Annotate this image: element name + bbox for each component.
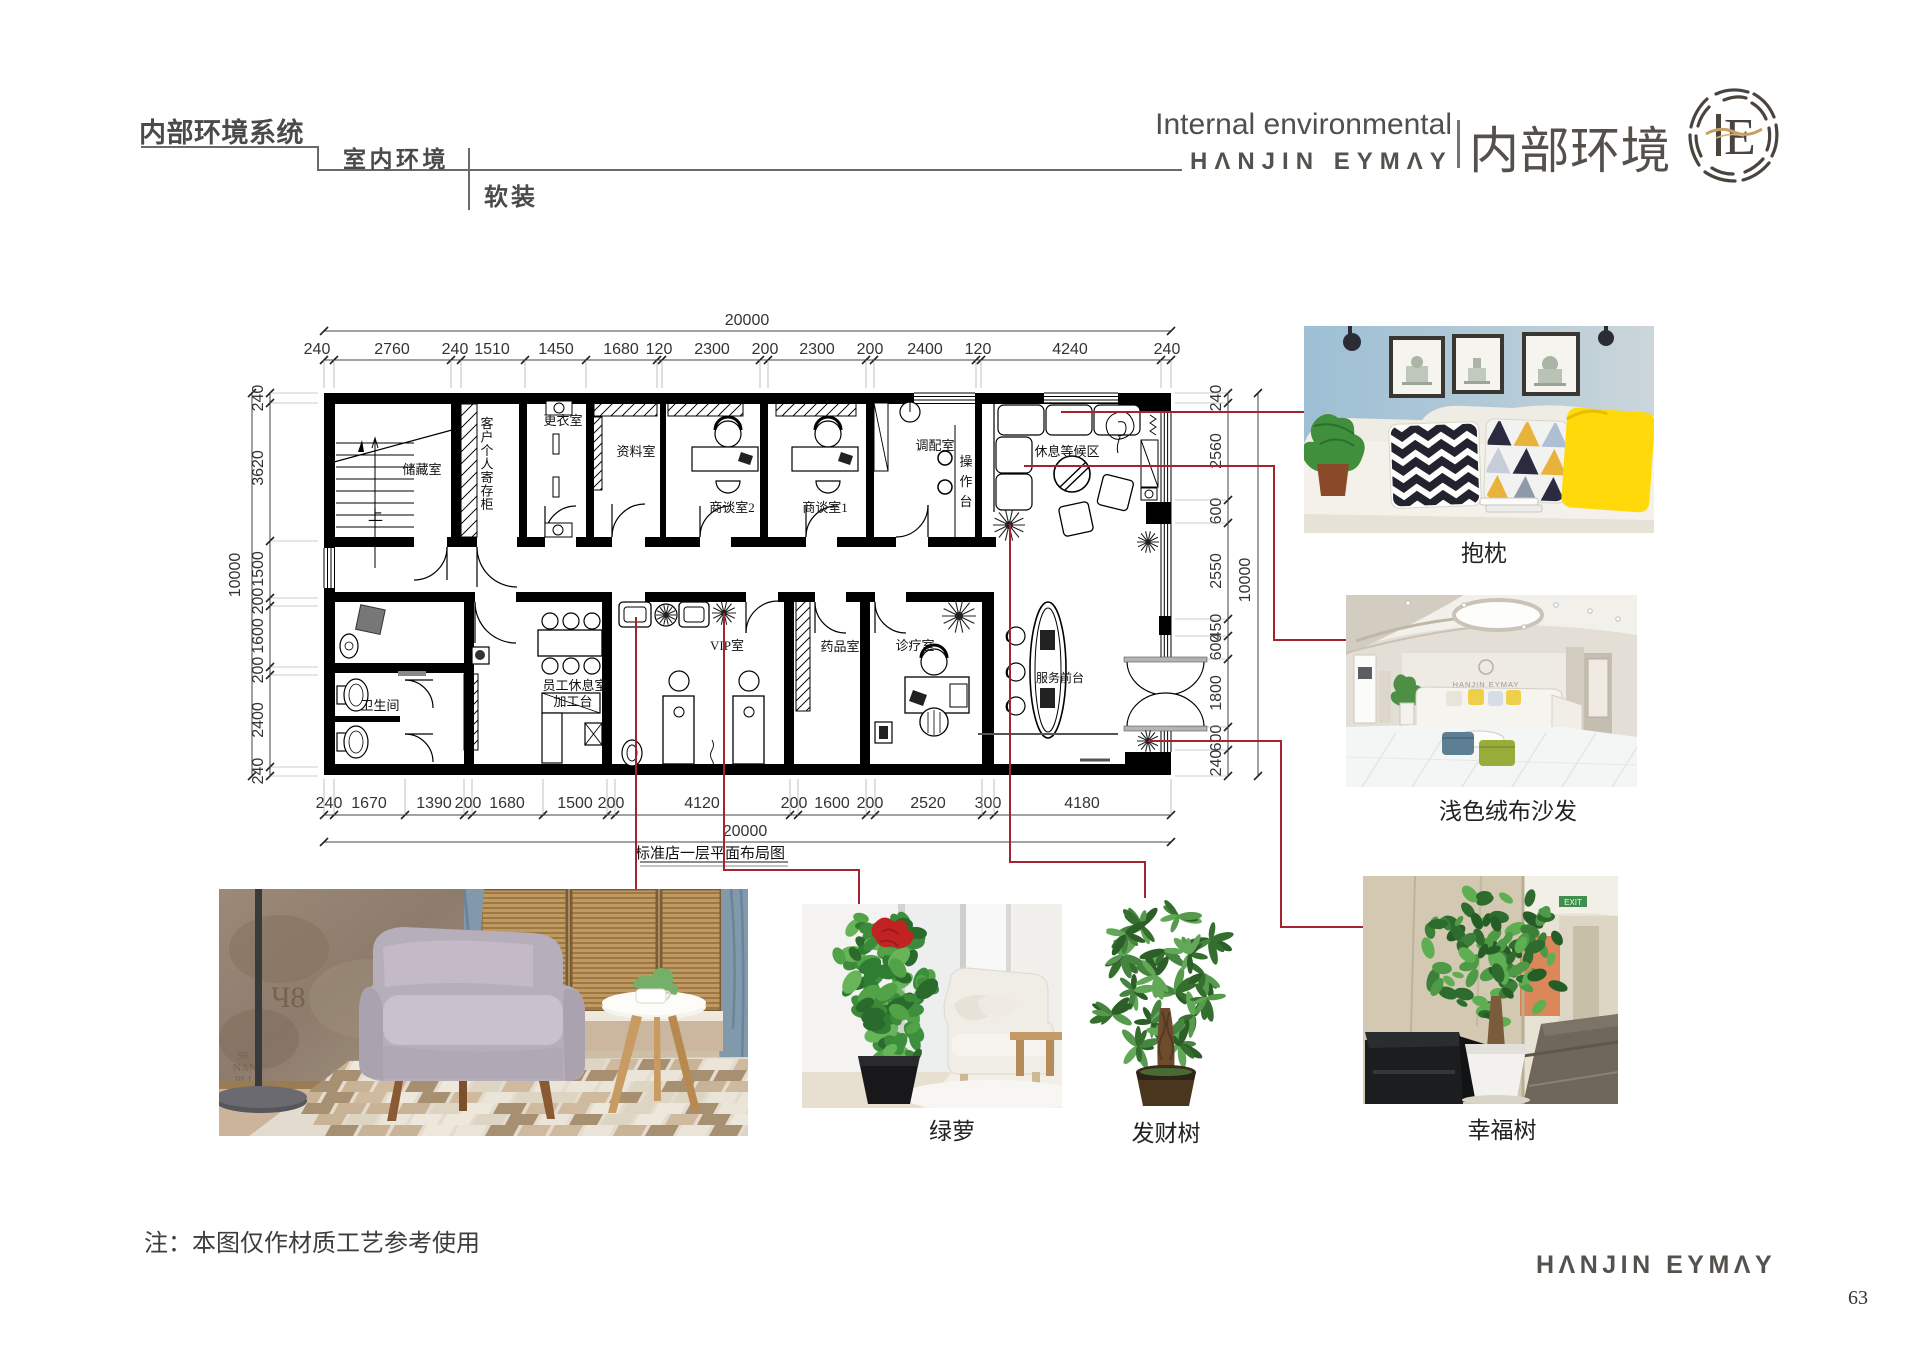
svg-text:卫生间: 卫生间 <box>360 698 399 713</box>
svg-text:1500: 1500 <box>557 795 593 812</box>
svg-text:商谈室1: 商谈室1 <box>802 500 848 515</box>
svg-text:300: 300 <box>975 795 1002 812</box>
svg-text:1680: 1680 <box>603 341 639 358</box>
svg-text:120: 120 <box>646 341 673 358</box>
svg-text:1510: 1510 <box>474 341 510 358</box>
svg-text:2300: 2300 <box>799 341 835 358</box>
svg-text:240: 240 <box>250 385 267 412</box>
svg-text:200: 200 <box>781 795 808 812</box>
svg-text:3620: 3620 <box>250 450 267 486</box>
svg-text:调配室: 调配室 <box>915 438 954 453</box>
svg-text:储藏室: 储藏室 <box>402 462 441 477</box>
svg-text:200: 200 <box>598 795 625 812</box>
svg-text:1600: 1600 <box>814 795 850 812</box>
svg-text:2400: 2400 <box>907 341 943 358</box>
svg-text:240: 240 <box>1154 341 1181 358</box>
svg-text:200: 200 <box>250 588 267 615</box>
svg-text:台: 台 <box>959 494 972 509</box>
svg-text:加工台: 加工台 <box>553 694 592 709</box>
svg-text:柜: 柜 <box>480 497 493 512</box>
svg-text:1670: 1670 <box>351 795 387 812</box>
svg-text:240: 240 <box>304 341 331 358</box>
svg-text:员工休息室: 员工休息室 <box>542 678 607 693</box>
svg-text:2550: 2550 <box>1208 553 1225 589</box>
svg-text:1680: 1680 <box>489 795 525 812</box>
svg-text:240: 240 <box>442 341 469 358</box>
svg-text:200: 200 <box>250 657 267 684</box>
svg-text:120: 120 <box>965 341 992 358</box>
svg-text:200: 200 <box>752 341 779 358</box>
svg-text:1600: 1600 <box>250 618 267 654</box>
svg-text:240: 240 <box>316 795 343 812</box>
svg-text:服务前台: 服务前台 <box>1036 670 1084 685</box>
svg-text:作: 作 <box>959 474 972 489</box>
svg-text:上: 上 <box>368 507 383 524</box>
svg-text:4240: 4240 <box>1052 341 1088 358</box>
svg-text:240: 240 <box>1208 385 1225 412</box>
svg-text:1500: 1500 <box>250 551 267 587</box>
svg-text:2760: 2760 <box>374 341 410 358</box>
svg-text:600: 600 <box>1208 634 1225 661</box>
svg-text:2400: 2400 <box>250 702 267 738</box>
svg-text:240: 240 <box>1208 750 1225 777</box>
svg-text:更衣室: 更衣室 <box>543 413 582 428</box>
svg-text:10000: 10000 <box>1237 558 1254 603</box>
svg-text:药品室: 药品室 <box>820 639 859 654</box>
svg-text:200: 200 <box>857 795 884 812</box>
svg-text:2300: 2300 <box>694 341 730 358</box>
svg-text:600: 600 <box>1208 725 1225 752</box>
svg-text:操: 操 <box>959 454 972 469</box>
svg-text:VIP室: VIP室 <box>710 638 744 653</box>
svg-text:标准店一层平面布局图: 标准店一层平面布局图 <box>635 845 785 862</box>
svg-text:240: 240 <box>250 758 267 785</box>
svg-text:资料室: 资料室 <box>616 444 655 459</box>
svg-text:2560: 2560 <box>1208 433 1225 469</box>
svg-text:诊疗室: 诊疗室 <box>895 638 934 653</box>
svg-text:4120: 4120 <box>684 795 720 812</box>
svg-text:1450: 1450 <box>538 341 574 358</box>
svg-text:4180: 4180 <box>1064 795 1100 812</box>
svg-text:2520: 2520 <box>910 795 946 812</box>
svg-text:200: 200 <box>455 795 482 812</box>
svg-text:商谈室2: 商谈室2 <box>709 500 755 515</box>
svg-text:600: 600 <box>1208 498 1225 525</box>
svg-text:10000: 10000 <box>227 553 244 598</box>
svg-text:EXIT: EXIT <box>1564 898 1582 907</box>
svg-text:休息等候区: 休息等候区 <box>1034 444 1099 459</box>
svg-text:200: 200 <box>857 341 884 358</box>
svg-text:20000: 20000 <box>723 823 768 840</box>
svg-text:20000: 20000 <box>725 312 770 329</box>
svg-text:1800: 1800 <box>1208 675 1225 711</box>
svg-text:1390: 1390 <box>416 795 452 812</box>
svg-text:Ч8: Ч8 <box>271 981 306 1014</box>
